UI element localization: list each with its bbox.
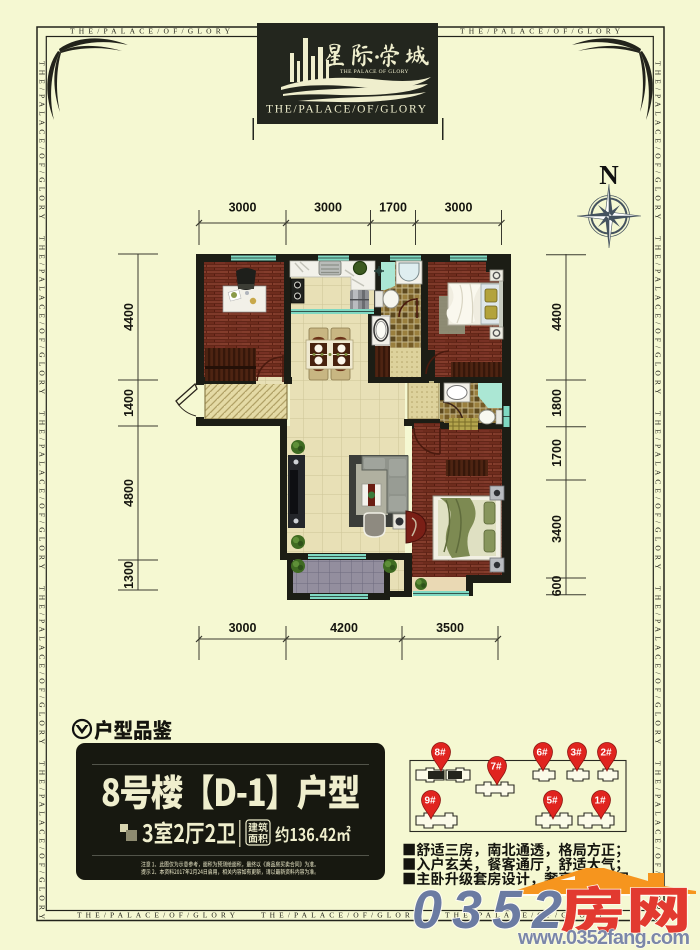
svg-text:1400: 1400 — [122, 389, 136, 417]
svg-text:1#: 1# — [594, 796, 606, 807]
svg-text:3#: 3# — [570, 748, 582, 759]
svg-text:7#: 7# — [490, 762, 502, 773]
svg-text:3400: 3400 — [550, 515, 564, 543]
svg-text:1700: 1700 — [379, 201, 407, 215]
svg-text:THE PALACE OF GLORY: THE PALACE OF GLORY — [340, 69, 410, 75]
svg-text:4800: 4800 — [122, 479, 136, 507]
svg-text:THE/PALACE/OF/GLORY: THE/PALACE/OF/GLORY — [266, 104, 428, 116]
svg-text:3500: 3500 — [436, 621, 464, 635]
svg-text:3000: 3000 — [229, 621, 257, 635]
svg-text:1700: 1700 — [550, 439, 564, 467]
svg-text:6#: 6# — [536, 748, 548, 759]
svg-text:3000: 3000 — [229, 201, 257, 215]
svg-text:8#: 8# — [434, 748, 446, 759]
svg-text:2#: 2# — [600, 748, 612, 759]
svg-text:1800: 1800 — [550, 389, 564, 417]
svg-text:9#: 9# — [424, 796, 436, 807]
svg-text:4200: 4200 — [330, 621, 358, 635]
svg-text:4400: 4400 — [550, 303, 564, 331]
svg-text:3000: 3000 — [314, 201, 342, 215]
svg-text:600: 600 — [550, 576, 564, 597]
svg-text:www.0352fang.com: www.0352fang.com — [517, 927, 690, 949]
svg-text:4400: 4400 — [122, 303, 136, 331]
svg-text:3000: 3000 — [445, 201, 473, 215]
svg-text:1300: 1300 — [122, 561, 136, 589]
svg-text:5#: 5# — [546, 796, 558, 807]
